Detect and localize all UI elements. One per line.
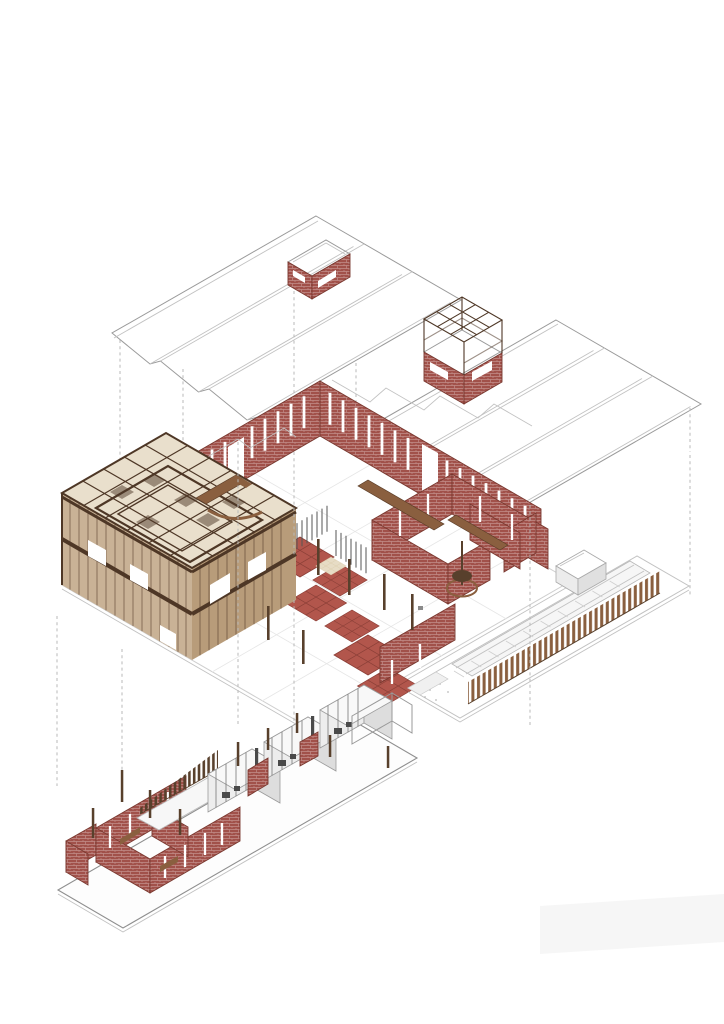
brick-roof-pavilion: [424, 297, 502, 404]
axonometric-drawing: [0, 0, 724, 1024]
main-floor-level: [62, 380, 689, 734]
drawing-page: [0, 0, 724, 1024]
sawtooth-roof-north: [112, 216, 461, 420]
shadow-band: [540, 894, 724, 954]
